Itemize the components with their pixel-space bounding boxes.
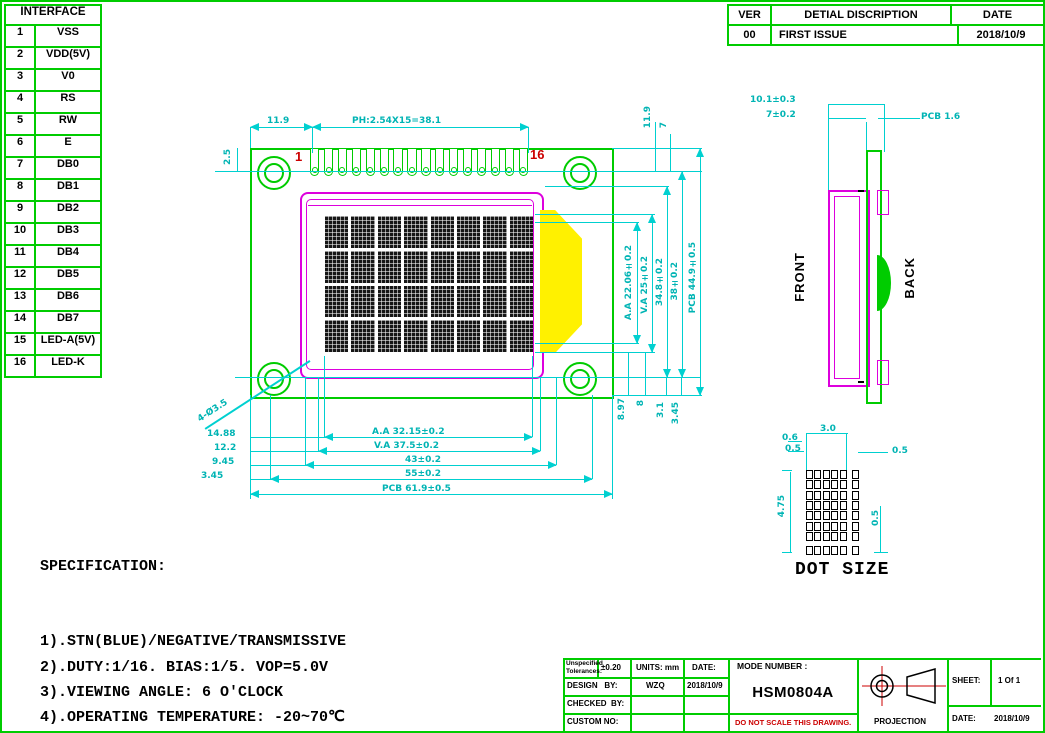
side-tab-bottom [877, 360, 889, 385]
stair-3-45: 3.45 [201, 471, 223, 481]
dot-cell [806, 470, 813, 479]
character-block [325, 286, 348, 318]
dim-dot-pitch: 0.6 [782, 433, 798, 443]
pin-number: 8 [6, 180, 36, 200]
character-block [351, 216, 374, 248]
dim-arrow [250, 490, 259, 498]
dot-cell [823, 491, 830, 500]
pin-number: 4 [6, 92, 36, 112]
interface-row: 1VSS [6, 24, 100, 46]
dim-line [535, 222, 639, 223]
dot-cell [823, 501, 830, 510]
backlight-bump [877, 255, 891, 311]
design-by-label: DESIGN BY: [567, 681, 618, 690]
dot-cell [852, 491, 859, 500]
dim-line [318, 377, 319, 451]
interface-row: 8DB1 [6, 178, 100, 200]
character-block [378, 216, 401, 248]
character-block [483, 286, 506, 318]
revision-ver: 00 [729, 26, 772, 44]
titleblock-line [857, 658, 859, 731]
pin-name: DB3 [36, 224, 100, 244]
side-tick-bottom [858, 381, 864, 383]
dim-line [612, 148, 702, 149]
specification-block: SPECIFICATION: 1).STN(BLUE)/NEGATIVE/TRA… [40, 503, 364, 733]
stair-12-2: 12.2 [214, 443, 236, 453]
pin-number: 1 [6, 26, 36, 46]
pin-number: 3 [6, 70, 36, 90]
design-by-value: WZQ [646, 681, 665, 690]
dot-cell [831, 501, 838, 510]
pin-number: 5 [6, 114, 36, 134]
revision-header-row: VER DETIAL DISCRIPTION DATE [729, 6, 1043, 24]
specification-lines: 1).STN(BLUE)/NEGATIVE/TRANSMISSIVE2).DUT… [40, 629, 364, 733]
dot-cell [814, 480, 821, 489]
dot-cell [831, 491, 838, 500]
interface-table: INTERFACE 1VSS2VDD(5V)3V04RS5RW6E7DB08DB… [4, 4, 102, 378]
dot-cell [840, 532, 847, 541]
pin-name: DB4 [36, 246, 100, 266]
dim-line [884, 104, 885, 152]
dim-line [324, 356, 325, 437]
dot-cell [852, 546, 859, 555]
pin-name: DB5 [36, 268, 100, 288]
dot-cell [814, 522, 821, 531]
pin-1-label: 1 [295, 149, 302, 164]
dim-arrow [318, 447, 327, 455]
dim-line [858, 452, 888, 453]
dim-arrow [663, 186, 671, 195]
date-header: DATE: [692, 663, 716, 672]
stair-9-45: 9.45 [212, 457, 234, 467]
pin-name: E [36, 136, 100, 156]
dot-cell [806, 546, 813, 555]
dim-line [681, 377, 682, 395]
dim-line [250, 494, 612, 495]
dim-line [700, 148, 701, 395]
dot-cell [814, 546, 821, 555]
dim-va-width: V.A 37.5±0.2 [374, 441, 439, 451]
dim-pin-pitch: PH:2.54X15=38.1 [352, 116, 441, 126]
revision-date: 2018/10/9 [959, 26, 1043, 44]
dim-dot-width: 0.5 [785, 444, 801, 454]
dim-8: 8 [636, 400, 646, 406]
dim-line [612, 395, 613, 499]
dim-line [535, 343, 639, 344]
lcd-bezel-topline [308, 205, 532, 206]
dot-size-title: DOT SIZE [795, 560, 889, 580]
character-block [325, 216, 348, 248]
pin-number: 11 [6, 246, 36, 266]
front-label: FRONT [792, 252, 807, 302]
dim-arrow [548, 461, 557, 469]
character-block [404, 320, 427, 352]
pin-name: DB6 [36, 290, 100, 310]
specification-line: 4).OPERATING TEMPERATURE: -20~70℃ [40, 705, 364, 730]
dim-3-45-right: 3.45 [671, 402, 681, 424]
interface-row: 15LED-A(5V) [6, 332, 100, 354]
drawing-sheet: INTERFACE 1VSS2VDD(5V)3V04RS5RW6E7DB08DB… [0, 0, 1045, 733]
dim-line [532, 356, 533, 437]
date-label-bottom: DATE: [952, 714, 976, 723]
dot-cell [852, 470, 859, 479]
dim-pcb-height: PCB 44.9±0.5 [688, 242, 698, 313]
dot-cell [823, 480, 830, 489]
dim-line [535, 214, 655, 215]
dot-cell [840, 501, 847, 510]
pin-number: 7 [6, 158, 36, 178]
dim-arrow [633, 222, 641, 231]
interface-row: 5RW [6, 112, 100, 134]
dot-cell [840, 491, 847, 500]
character-block [351, 286, 374, 318]
dim-arrow [696, 148, 704, 157]
dim-col-gap: 0.5 [892, 446, 908, 456]
dim-line [305, 377, 306, 465]
character-block [378, 286, 401, 318]
pin-number: 2 [6, 48, 36, 68]
dim-8-97: 8.97 [617, 398, 627, 420]
dot-cell [840, 470, 847, 479]
dim-arrow [520, 123, 529, 131]
dim-arrow [633, 335, 641, 344]
character-block [457, 216, 480, 248]
dim-line [806, 433, 807, 470]
dim-arrow [312, 123, 321, 131]
dim-arrow [696, 387, 704, 396]
design-date: 2018/10/9 [687, 681, 723, 690]
dim-char-height: 4.75 [777, 495, 787, 517]
dot-cell [840, 480, 847, 489]
character-block [510, 320, 533, 352]
dim-arrow [270, 475, 279, 483]
dot-cell [806, 491, 813, 500]
pin-number: 14 [6, 312, 36, 332]
interface-table-title: INTERFACE [6, 6, 100, 24]
interface-table-body: 1VSS2VDD(5V)3V04RS5RW6E7DB08DB19DB210DB3… [6, 24, 100, 376]
interface-row: 2VDD(5V) [6, 46, 100, 68]
character-block [457, 251, 480, 283]
dot-cell [806, 532, 813, 541]
character-block [510, 216, 533, 248]
dot-cell [831, 480, 838, 489]
dot-size-grid [806, 470, 866, 560]
side-tab-top [877, 190, 889, 215]
tolerance-value: ±0.20 [601, 663, 621, 672]
projection-label: PROJECTION [874, 717, 926, 726]
stair-14-88: 14.88 [207, 429, 235, 439]
titleblock-line [563, 713, 859, 715]
dim-line [670, 134, 671, 171]
interface-row: 9DB2 [6, 200, 100, 222]
revision-col-ver: VER [729, 6, 772, 24]
character-block [351, 251, 374, 283]
pin-number: 10 [6, 224, 36, 244]
model-number: HSM0804A [730, 684, 856, 701]
dot-cell [823, 532, 830, 541]
dim-hole-callout: 4-Ø3.5 [196, 398, 230, 425]
dot-cell [831, 522, 838, 531]
pin-name: VSS [36, 26, 100, 46]
dot-cell [814, 491, 821, 500]
date-value: 2018/10/9 [994, 714, 1030, 723]
pin-name: VDD(5V) [36, 48, 100, 68]
character-block [431, 216, 454, 248]
dot-cell [814, 532, 821, 541]
dim-3-1: 3.1 [656, 402, 666, 418]
dim-line [250, 451, 540, 452]
dot-cell [852, 532, 859, 541]
dim-arrow [250, 123, 259, 131]
dim-line [250, 479, 592, 480]
dim-arrow [532, 447, 541, 455]
pin-16-label: 16 [530, 147, 544, 162]
dim-arrow [604, 490, 613, 498]
dim-34-8: 34.8±0.2 [655, 258, 665, 306]
dim-7-side: 7±0.2 [766, 110, 796, 120]
dim-line [874, 552, 888, 553]
dot-cell [806, 511, 813, 520]
dim-line [667, 186, 668, 377]
pin-number: 13 [6, 290, 36, 310]
dim-arrow [324, 433, 333, 441]
dot-cell [831, 532, 838, 541]
dot-matrix-display [325, 216, 533, 352]
dot-cell [814, 470, 821, 479]
interface-row: 16LED-K [6, 354, 100, 376]
dot-cell [806, 480, 813, 489]
sheet-label: SHEET: [952, 676, 980, 685]
dim-arrow [678, 171, 686, 180]
revision-description: FIRST ISSUE [772, 26, 959, 44]
dot-cell [840, 522, 847, 531]
dim-line [612, 395, 702, 396]
projection-symbol [862, 664, 946, 708]
dim-line [866, 122, 867, 150]
dim-dot-height: 0.5 [871, 510, 881, 526]
dim-7-right: 7 [659, 122, 669, 128]
titleblock-line [563, 695, 730, 697]
revision-col-date: DATE [952, 6, 1043, 24]
character-block [483, 251, 506, 283]
titleblock-line [563, 658, 1041, 660]
dot-cell [852, 511, 859, 520]
dim-line [828, 104, 884, 105]
dim-arrow [678, 369, 686, 378]
titleblock-line [947, 658, 949, 731]
mounting-hole-inner-tl [264, 163, 284, 183]
dot-cell [814, 511, 821, 520]
character-block [351, 320, 374, 352]
mounting-hole-inner-br [570, 369, 590, 389]
dim-55: 55±0.2 [405, 469, 441, 479]
mounting-hole-inner-tr [570, 163, 590, 183]
dim-line [828, 118, 866, 119]
dot-cell [852, 501, 859, 510]
pin-name: DB7 [36, 312, 100, 332]
dim-line [782, 552, 792, 553]
interface-row: 10DB3 [6, 222, 100, 244]
dim-pcb-thickness: PCB 1.6 [921, 112, 960, 122]
do-not-scale-warning: DO NOT SCALE THIS DRAWING. [735, 718, 851, 727]
pin-name: DB0 [36, 158, 100, 178]
pin-name: V0 [36, 70, 100, 90]
pin-number: 12 [6, 268, 36, 288]
dim-43: 43±0.2 [405, 455, 441, 465]
dot-cell [852, 522, 859, 531]
sheet-value: 1 Of 1 [998, 676, 1020, 685]
dot-cell [852, 480, 859, 489]
specification-heading: SPECIFICATION: [40, 554, 364, 579]
dim-arrow [584, 475, 593, 483]
dim-arrow [663, 369, 671, 378]
interface-row: 4RS [6, 90, 100, 112]
dim-arrow [648, 214, 656, 223]
dot-cell [831, 546, 838, 555]
pin-name: DB1 [36, 180, 100, 200]
titleblock-line [990, 658, 992, 705]
character-block [510, 251, 533, 283]
dim-arrow [524, 433, 533, 441]
dim-line [312, 127, 528, 128]
specification-line: 1).STN(BLUE)/NEGATIVE/TRANSMISSIVE [40, 629, 364, 654]
dim-line [682, 171, 683, 377]
dim-line [652, 214, 653, 352]
character-block [457, 286, 480, 318]
specification-line: 3).VIEWING ANGLE: 6 O'CLOCK [40, 680, 364, 705]
dim-line [215, 171, 702, 172]
character-block [404, 251, 427, 283]
pin-number: 15 [6, 334, 36, 354]
character-block [510, 286, 533, 318]
dim-char-width: 3.0 [820, 424, 836, 434]
titleblock-line [947, 705, 1041, 707]
dim-line [540, 377, 541, 451]
revision-row: 00 FIRST ISSUE 2018/10/9 [729, 24, 1043, 44]
dim-arrow [305, 461, 314, 469]
interface-row: 6E [6, 134, 100, 156]
dim-va-height: V.A 25±0.2 [640, 256, 650, 314]
interface-row: 14DB7 [6, 310, 100, 332]
side-front-frame-inner [834, 196, 860, 379]
character-block [325, 251, 348, 283]
dim-line [237, 148, 238, 172]
dim-line [250, 395, 251, 499]
side-tick-top [858, 190, 864, 192]
dim-aa-height: A.A 22.06±0.2 [624, 245, 634, 320]
dim-line [790, 472, 791, 552]
back-label: BACK [902, 257, 917, 299]
dot-cell [823, 511, 830, 520]
tolerance-label: Unspecified Tolerances: [566, 660, 603, 675]
checked-by-label: CHECKED BY: [567, 699, 624, 708]
dot-cell [823, 546, 830, 555]
character-block [325, 320, 348, 352]
pin-header-row [310, 149, 528, 177]
pin-name: DB2 [36, 202, 100, 222]
dim-10-1: 10.1±0.3 [750, 95, 796, 105]
pin-name: LED-A(5V) [36, 334, 100, 354]
character-block [431, 286, 454, 318]
dim-line [556, 377, 557, 465]
mode-number-label: MODE NUMBER : [737, 661, 807, 671]
dim-line [828, 104, 829, 190]
dim-11-9-right: 11.9 [643, 106, 653, 128]
interface-row: 3V0 [6, 68, 100, 90]
revision-table: VER DETIAL DISCRIPTION DATE 00 FIRST ISS… [727, 4, 1045, 46]
dim-aa-width: A.A 32.15±0.2 [372, 427, 445, 437]
dim-11-9-top: 11.9 [267, 116, 289, 126]
pin-name: LED-K [36, 356, 100, 376]
character-block [483, 216, 506, 248]
dim-line [666, 377, 667, 395]
dot-cell [814, 501, 821, 510]
pin-number: 9 [6, 202, 36, 222]
dim-line [270, 395, 271, 479]
interface-row: 7DB0 [6, 156, 100, 178]
dot-cell [840, 511, 847, 520]
pin-name: RW [36, 114, 100, 134]
dim-line [250, 437, 532, 438]
specification-line: 2).DUTY:1/16. BIAS:1/5. VOP=5.0V [40, 655, 364, 680]
character-block [378, 320, 401, 352]
dim-line [545, 186, 669, 187]
dim-2-5: 2.5 [223, 149, 233, 165]
pin-number: 6 [6, 136, 36, 156]
dim-line [637, 222, 638, 343]
interface-row: 13DB6 [6, 288, 100, 310]
custom-no-label: CUSTOM NO: [567, 717, 618, 726]
dot-cell [823, 522, 830, 531]
units-label: UNITS: mm [636, 663, 679, 672]
dim-line [628, 352, 629, 395]
dim-line [592, 395, 593, 479]
dim-line [846, 433, 847, 470]
dim-line [250, 127, 312, 128]
dim-line [535, 352, 655, 353]
pin-number: 16 [6, 356, 36, 376]
character-block [431, 251, 454, 283]
dim-line [250, 465, 556, 466]
character-block [431, 320, 454, 352]
dim-arrow [648, 344, 656, 353]
dot-cell [823, 470, 830, 479]
character-block [457, 320, 480, 352]
dot-cell [840, 546, 847, 555]
character-block [404, 286, 427, 318]
titleblock-line [563, 677, 730, 679]
dim-38: 38±0.2 [670, 262, 680, 300]
dot-cell [831, 511, 838, 520]
character-block [378, 251, 401, 283]
dot-cell [831, 470, 838, 479]
interface-row: 12DB5 [6, 266, 100, 288]
dot-cell [806, 501, 813, 510]
character-block [483, 320, 506, 352]
dim-line [645, 352, 646, 395]
dot-cell [806, 522, 813, 531]
dim-line [655, 122, 656, 171]
character-block [404, 216, 427, 248]
interface-row: 11DB4 [6, 244, 100, 266]
revision-col-description: DETIAL DISCRIPTION [772, 6, 952, 24]
pin-name: RS [36, 92, 100, 112]
dim-pcb-width: PCB 61.9±0.5 [382, 484, 451, 494]
